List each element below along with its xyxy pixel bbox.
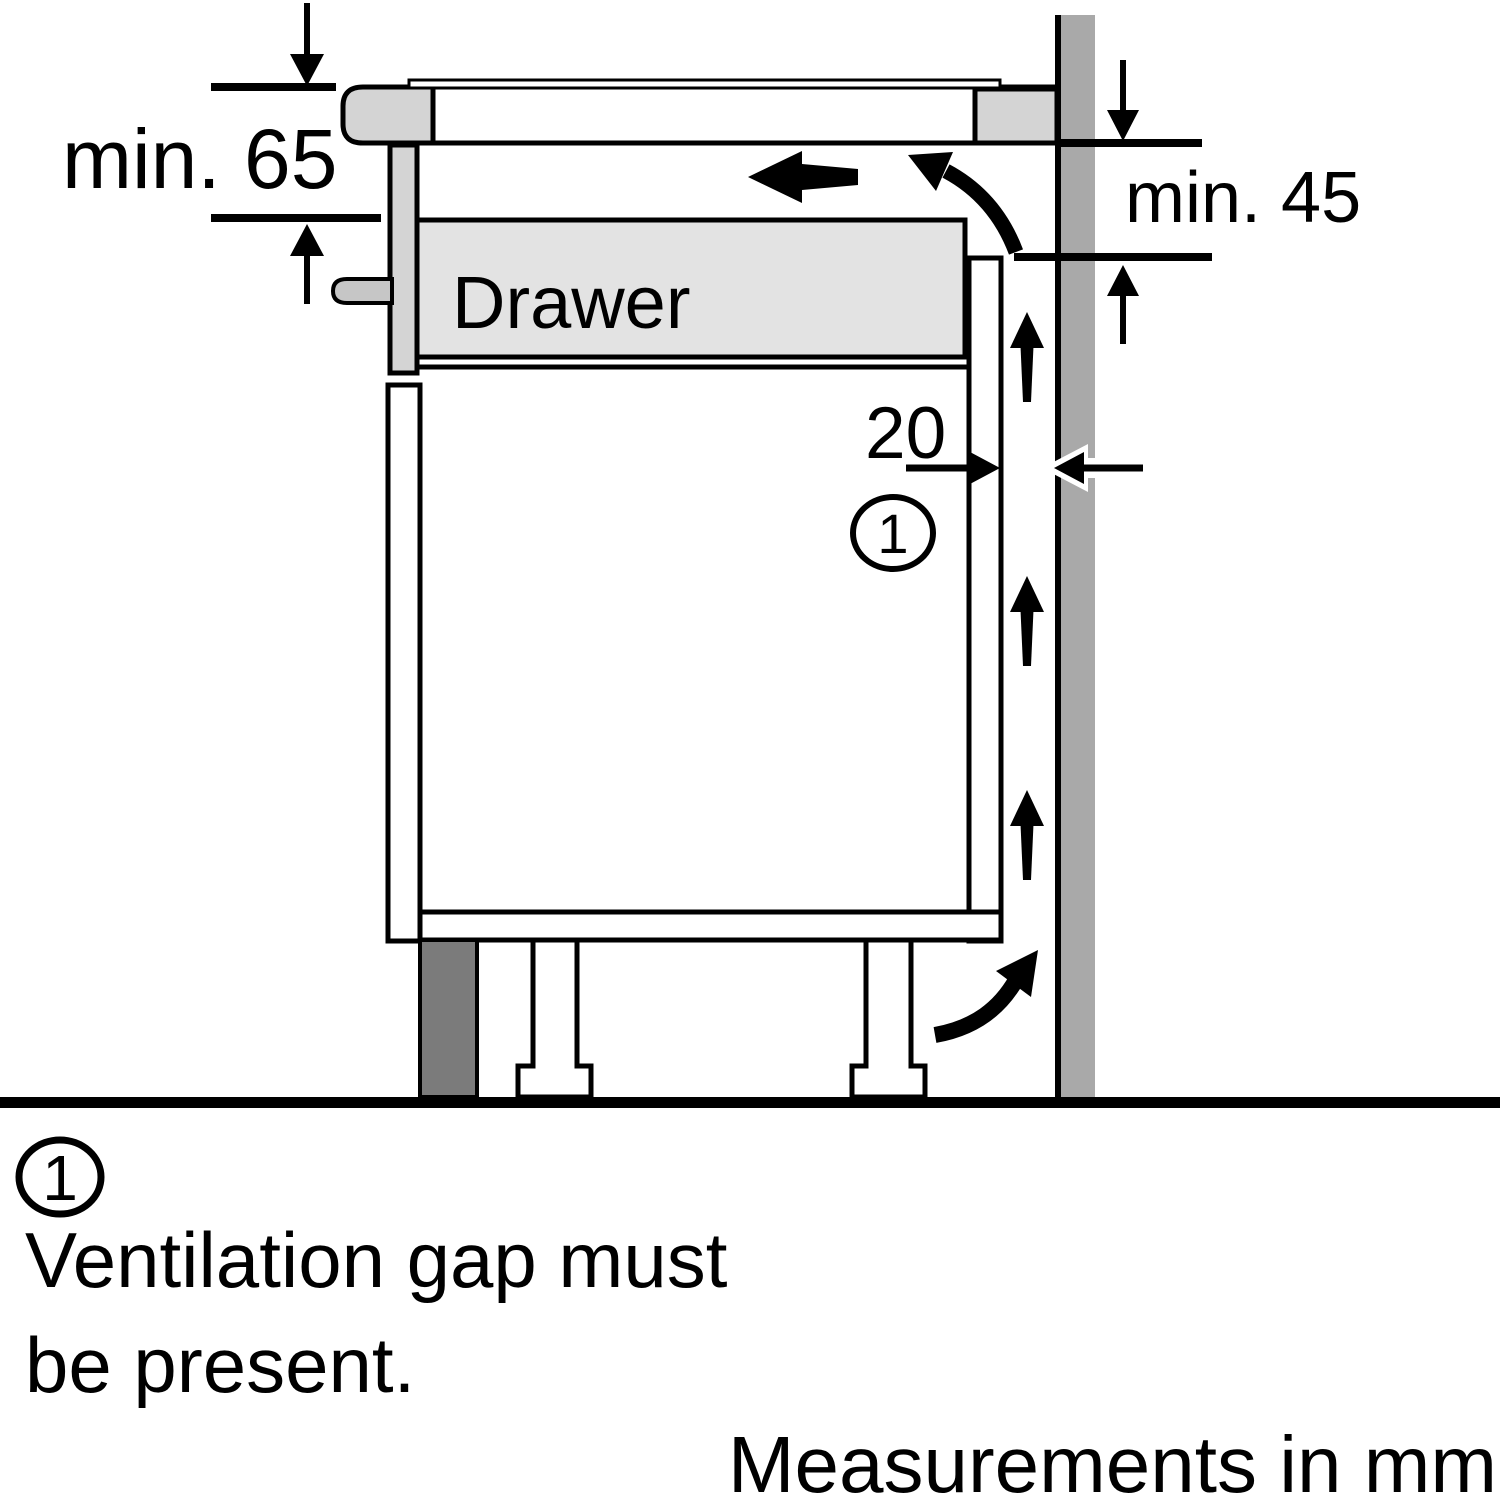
drawer-label: Drawer	[452, 261, 690, 344]
hob-glass	[409, 80, 1000, 88]
hob-trim-left	[343, 87, 433, 143]
drawer-front-panel	[390, 145, 417, 373]
dim-gap20-label: 20	[865, 393, 946, 474]
floor-line	[0, 1097, 1500, 1108]
cabinet-back-panel	[969, 258, 1001, 941]
callout-1: 1	[853, 497, 933, 569]
wall	[1058, 15, 1095, 1097]
legend-text-line1: Ventilation gap must	[25, 1216, 728, 1304]
installation-diagram-page: Drawer min. 65 min. 45 20	[0, 0, 1500, 1500]
legend-text-line2: be present.	[25, 1321, 415, 1409]
worktop	[427, 87, 1057, 143]
legend-marker-number: 1	[42, 1142, 78, 1214]
wall-fill	[1058, 15, 1095, 1097]
callout-1-number: 1	[877, 502, 908, 565]
dim-min65-label: min. 65	[62, 112, 337, 206]
cabinet-bottom-panel	[420, 912, 1001, 940]
drawer-handle	[333, 279, 392, 303]
cabinet-front-panel	[388, 385, 420, 941]
hob-installation-diagram: Drawer min. 65 min. 45 20	[0, 0, 1500, 1500]
worktop-end-block	[975, 89, 1057, 143]
plinth	[420, 940, 477, 1097]
units-note: Measurements in mm	[728, 1420, 1497, 1500]
dim-min45-label: min. 45	[1125, 158, 1361, 238]
